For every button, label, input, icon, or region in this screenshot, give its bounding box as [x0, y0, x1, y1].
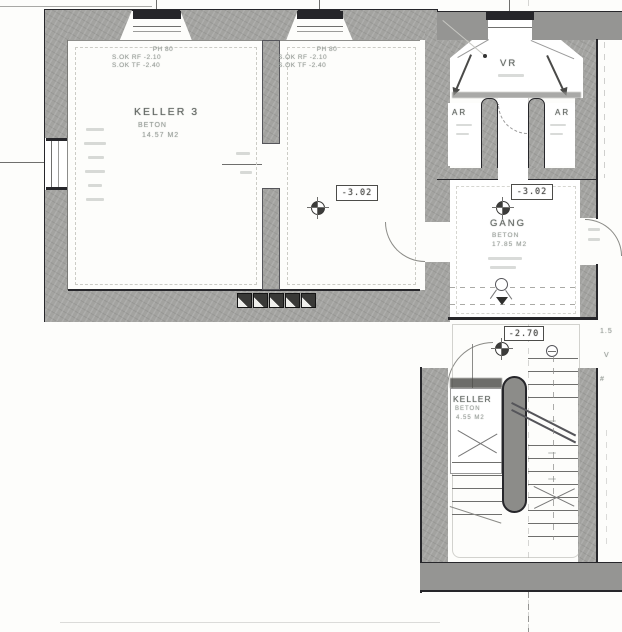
- cutoff-neighbor-line: [604, 42, 605, 178]
- left-window-glazing-line-2: [58, 141, 59, 187]
- stair-hall-wall-right: [578, 368, 598, 564]
- entry-window-opening: [488, 20, 532, 40]
- window-1-glazing-line: [133, 26, 181, 27]
- gang-step-line-1: [450, 287, 580, 288]
- left-window-glazing-line: [51, 141, 52, 187]
- finish-line-gang: [456, 186, 576, 314]
- scan-artifact-line: [60, 622, 440, 623]
- annotation-smudge: [490, 266, 516, 269]
- room-label-keller3: KELLER 3: [134, 106, 199, 118]
- annotation-smudge: [86, 128, 104, 131]
- main-axis-centerline-bottom: [528, 592, 529, 632]
- stair-walk-line: [553, 356, 554, 540]
- annotation-smudge: [488, 257, 522, 260]
- left-window-cap-top: [46, 138, 67, 141]
- window-1-sill: [133, 11, 181, 19]
- annotation-smudge: [498, 74, 524, 77]
- level-marker-room2: -3.02: [336, 185, 378, 201]
- stair-tread: [452, 488, 502, 489]
- room-material-keller3: BETON: [138, 122, 167, 129]
- window-2-note-line2: S.OK RF -2.10: [278, 54, 378, 62]
- stair-hall-bottom-wall: [420, 563, 622, 591]
- level-marker-gang: -3.02: [511, 184, 553, 200]
- room-area-gang: 17.85 M2: [492, 241, 527, 248]
- annotation-smudge: [550, 124, 566, 126]
- room-label-gang: GANG: [490, 218, 526, 229]
- left-wall-upper: [45, 10, 68, 138]
- vent-grate-icon: [301, 293, 316, 308]
- survey-cross-v: [502, 197, 503, 219]
- survey-cross-v: [317, 197, 318, 219]
- window-1-note-line2: S.OK RF -2.10: [112, 54, 212, 62]
- top-wall-block-b: [180, 10, 298, 40]
- tread-number-smudge: [548, 478, 556, 480]
- window-2-glazing-line: [297, 26, 343, 27]
- stair-spine-wall: [502, 376, 527, 513]
- annotation-smudge: [456, 133, 469, 135]
- edge-fragment-2: V: [604, 352, 610, 359]
- edge-fragment-3: #: [600, 376, 605, 383]
- room-material-keller-stair: BETON: [455, 406, 481, 412]
- window-1-note-line3: S.OK TF -2.40: [112, 62, 212, 70]
- stair-stub-wall: [450, 378, 502, 388]
- vent-grate-icon: [237, 293, 252, 308]
- window-2-sill: [297, 11, 343, 19]
- inner-wall-line-top: [68, 40, 420, 41]
- drain-triangle-icon: [496, 297, 508, 305]
- stair-tread: [452, 475, 502, 476]
- vent-grate-icon: [285, 293, 300, 308]
- room-area-keller-stair: 4.55 M2: [456, 415, 485, 421]
- annotation-smudge: [88, 156, 104, 159]
- stair-tread: [452, 462, 502, 463]
- gang-step-line-2: [450, 304, 580, 305]
- annotation-smudge: [86, 198, 104, 201]
- room-label-ar-left: AR: [452, 108, 467, 117]
- entry-window-glazing-line: [488, 27, 532, 28]
- survey-cross-h: [307, 207, 329, 208]
- annotation-smudge: [88, 184, 102, 187]
- survey-cross-h: [492, 207, 514, 208]
- inner-wall-line-left: [67, 40, 68, 291]
- room-label-vr: VR: [500, 58, 517, 69]
- window-1-note-title: PH 80: [118, 46, 208, 54]
- reference-line-top-left: [0, 6, 152, 7]
- door-stop-dot: [483, 54, 487, 58]
- top-wall-block-c: [340, 10, 437, 40]
- window-2-note-title: PH 80: [282, 46, 372, 54]
- bottom-wall-outer-edge: [420, 590, 622, 592]
- tread-number-smudge: [548, 452, 556, 454]
- outer-wall-edge-stair-right: [596, 368, 598, 564]
- window-2-note-line3: S.OK TF -2.40: [278, 62, 378, 70]
- room-label-keller-stair: KELLER: [453, 394, 492, 404]
- annotation-smudge: [84, 142, 106, 145]
- partition-wall-lower: [262, 188, 280, 290]
- room-area-keller3: 14.57 M2: [142, 132, 179, 139]
- survey-point-icon: [311, 201, 325, 215]
- entry-window-sill: [486, 12, 534, 20]
- annotation-smudge: [588, 238, 600, 241]
- floor-plan-canvas: KELLER 3 BETON 14.57 M2 PH 80 S.OK RF -2…: [0, 0, 622, 632]
- vent-grate-icon: [253, 293, 268, 308]
- finish-line-room2: [287, 47, 416, 285]
- window-2-glazing-line-2: [297, 31, 343, 32]
- survey-point-icon: [496, 201, 510, 215]
- outer-wall-edge-right-lower: [596, 264, 598, 320]
- annotation-smudge: [85, 170, 105, 173]
- cutoff-neighbor-line-2: [606, 430, 607, 550]
- vent-grate-icon: [269, 293, 284, 308]
- annotation-smudge: [456, 124, 472, 126]
- annotation-smudge: [550, 133, 563, 135]
- outer-wall-edge-right-upper: [596, 39, 598, 219]
- shared-wall-lower: [425, 262, 450, 322]
- annotation-smudge: [588, 228, 600, 231]
- window-1-glazing-line-2: [133, 31, 181, 32]
- room-material-gang: BETON: [492, 232, 519, 239]
- finish-line-keller3: [75, 47, 257, 285]
- tread-number-smudge: [548, 420, 556, 422]
- inner-wall-line-bottom: [68, 289, 420, 291]
- entry-passage-lower: [498, 168, 528, 180]
- stair-hall-wall-left: [422, 368, 448, 592]
- left-window-opening: [45, 138, 68, 190]
- edge-fragment-1: 1.5: [600, 328, 613, 335]
- room-label-ar-right: AR: [555, 108, 570, 117]
- stair-tread: [452, 501, 502, 502]
- step-edge-line: [448, 317, 598, 320]
